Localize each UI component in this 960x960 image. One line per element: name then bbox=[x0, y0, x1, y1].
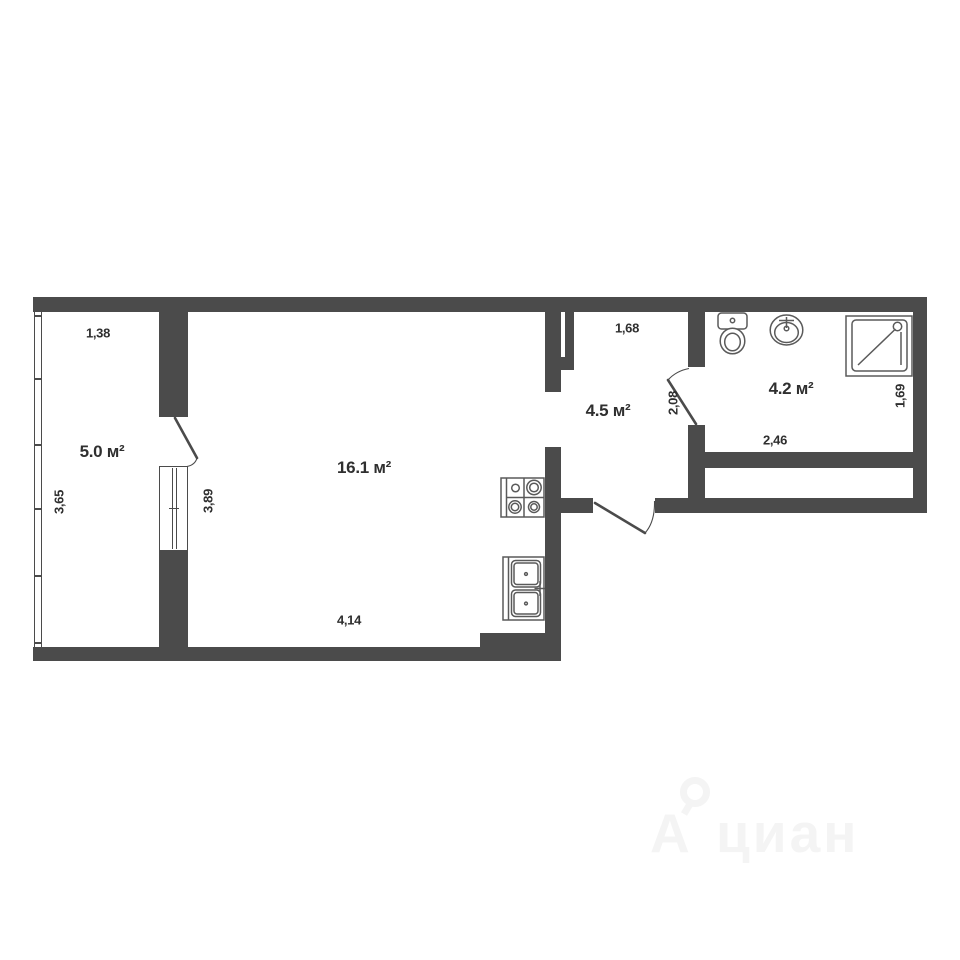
wall-room16-bottom bbox=[33, 647, 561, 661]
wall-right-outer bbox=[913, 312, 927, 513]
area-label-hall: 4.5 м² bbox=[586, 401, 631, 421]
plan-overlay: А циан bbox=[0, 0, 960, 960]
wardrobe-slider bbox=[159, 466, 188, 551]
window-left bbox=[34, 312, 42, 647]
floor-plan-canvas: А циан 5.0 м² 16.1 м² 4.5 м² 4.2 м² 1,38… bbox=[0, 0, 960, 960]
stove-icon bbox=[501, 478, 544, 517]
dim-room5-doorwall: 3,89 bbox=[201, 489, 216, 513]
wall-hall-bath-lower bbox=[688, 425, 705, 513]
wall-partition-lower bbox=[159, 551, 188, 647]
area-label-room16: 16.1 м² bbox=[337, 458, 391, 478]
watermark-text: циан bbox=[716, 802, 859, 864]
wall-bath-bottom bbox=[688, 452, 927, 468]
wall-vent-left-prong bbox=[545, 312, 561, 392]
watermark-cian: А циан bbox=[650, 781, 859, 865]
area-label-bath: 4.2 м² bbox=[769, 379, 814, 399]
dim-bath-bottom: 2,46 bbox=[763, 433, 787, 448]
wall-entry-left-stub bbox=[561, 498, 593, 513]
toilet-icon bbox=[718, 313, 747, 354]
wall-top bbox=[33, 297, 927, 312]
wall-vent-right-prong bbox=[565, 312, 574, 357]
window-tick bbox=[35, 315, 41, 317]
wall-vent-connector bbox=[545, 357, 574, 370]
dim-room5-left: 3,65 bbox=[52, 490, 67, 514]
dim-hall-top: 1,68 bbox=[615, 321, 639, 336]
dim-room16-bottom: 4,14 bbox=[337, 613, 361, 628]
window-tick bbox=[35, 444, 41, 446]
dim-hall-doorwall: 2,08 bbox=[666, 391, 681, 415]
shower-icon bbox=[846, 316, 912, 376]
door-room5 bbox=[175, 418, 197, 467]
window-tick bbox=[35, 508, 41, 510]
window-tick bbox=[35, 642, 41, 644]
wardrobe-leaf-tick bbox=[169, 508, 179, 509]
wall-hall-bath-upper bbox=[688, 312, 705, 367]
wall-room16-bottom-step bbox=[480, 633, 561, 648]
kitchen-sink-icon bbox=[503, 557, 545, 620]
dim-room5-top: 1,38 bbox=[86, 326, 110, 341]
wall-partition-upper bbox=[159, 312, 188, 417]
watermark-logo-letter: А bbox=[650, 802, 690, 864]
window-tick bbox=[35, 575, 41, 577]
window-tick bbox=[35, 378, 41, 380]
door-entrance bbox=[595, 501, 655, 533]
bathroom-sink-icon bbox=[770, 315, 803, 345]
dim-bath-right: 1,69 bbox=[893, 384, 908, 408]
area-label-room5: 5.0 м² bbox=[80, 442, 125, 462]
wall-room16-right bbox=[545, 447, 561, 660]
